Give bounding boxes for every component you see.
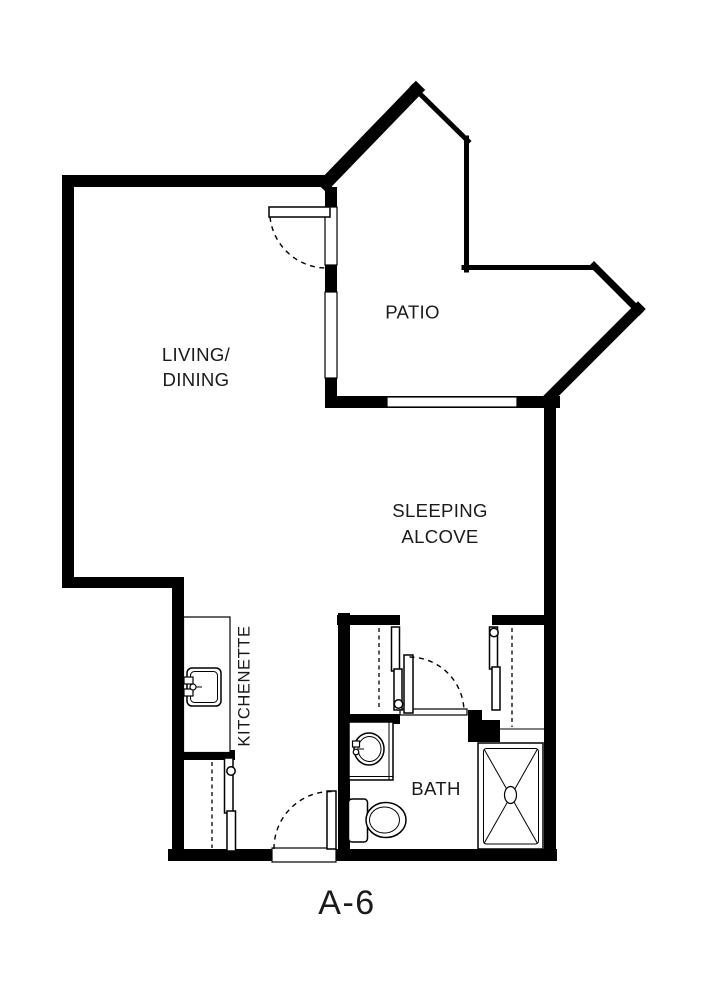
- window-patio-left-wall: [325, 292, 337, 378]
- kitchenette-fixtures: [184, 617, 231, 753]
- bath-faucet-knob: [353, 749, 359, 755]
- entry-threshold: [272, 848, 336, 862]
- label-sleeping-line2: ALCOVE: [401, 526, 478, 547]
- shower-drain: [505, 787, 517, 804]
- kitchen-faucet-part-a: [184, 677, 193, 684]
- toilet-tank: [349, 799, 368, 842]
- wall-right: [544, 398, 556, 861]
- wall-step: [62, 577, 183, 588]
- kitchen-faucet-knob: [190, 684, 196, 690]
- hall-left-closet-door-panel-1: [392, 627, 400, 671]
- entry-door-leaf: [327, 791, 336, 849]
- window-patio-bottom-wall: [387, 397, 517, 407]
- label-living-line1: LIVING/: [162, 344, 231, 365]
- wall-alcove-bottom-right: [492, 615, 556, 625]
- wall-left-lower: [172, 577, 184, 861]
- hall-left-closet-door-knob: [394, 700, 402, 708]
- hall-right-closet-door-panel-2: [492, 667, 500, 710]
- label-kitchenette: KITCHENETTE: [236, 625, 254, 746]
- floor-plan-svg: LIVING/ DINING PATIO SLEEPING ALCOVE KIT…: [0, 0, 705, 998]
- bath-door-leaf: [404, 655, 413, 713]
- label-patio: PATIO: [385, 302, 440, 323]
- bath-faucet-part: [353, 741, 360, 747]
- unit-label: A-6: [318, 884, 375, 922]
- label-sleeping-line1: SLEEPING: [392, 500, 487, 521]
- wall-patio-left-b: [325, 263, 337, 292]
- floor-plan: LIVING/ DINING PATIO SLEEPING ALCOVE KIT…: [0, 0, 705, 998]
- wall-left: [62, 175, 74, 588]
- entry-closet-door-panel-2: [227, 811, 236, 851]
- patio-door-leaf: [269, 207, 330, 217]
- wall-bath-corner-a: [468, 710, 482, 742]
- label-bath: BATH: [411, 778, 460, 799]
- wall-top: [62, 175, 332, 187]
- wall-bath-corner-b: [482, 720, 500, 742]
- hall-right-closet-door-knob: [490, 628, 498, 636]
- label-living-line2: DINING: [163, 369, 230, 390]
- entry-closet-door-knob: [227, 767, 235, 775]
